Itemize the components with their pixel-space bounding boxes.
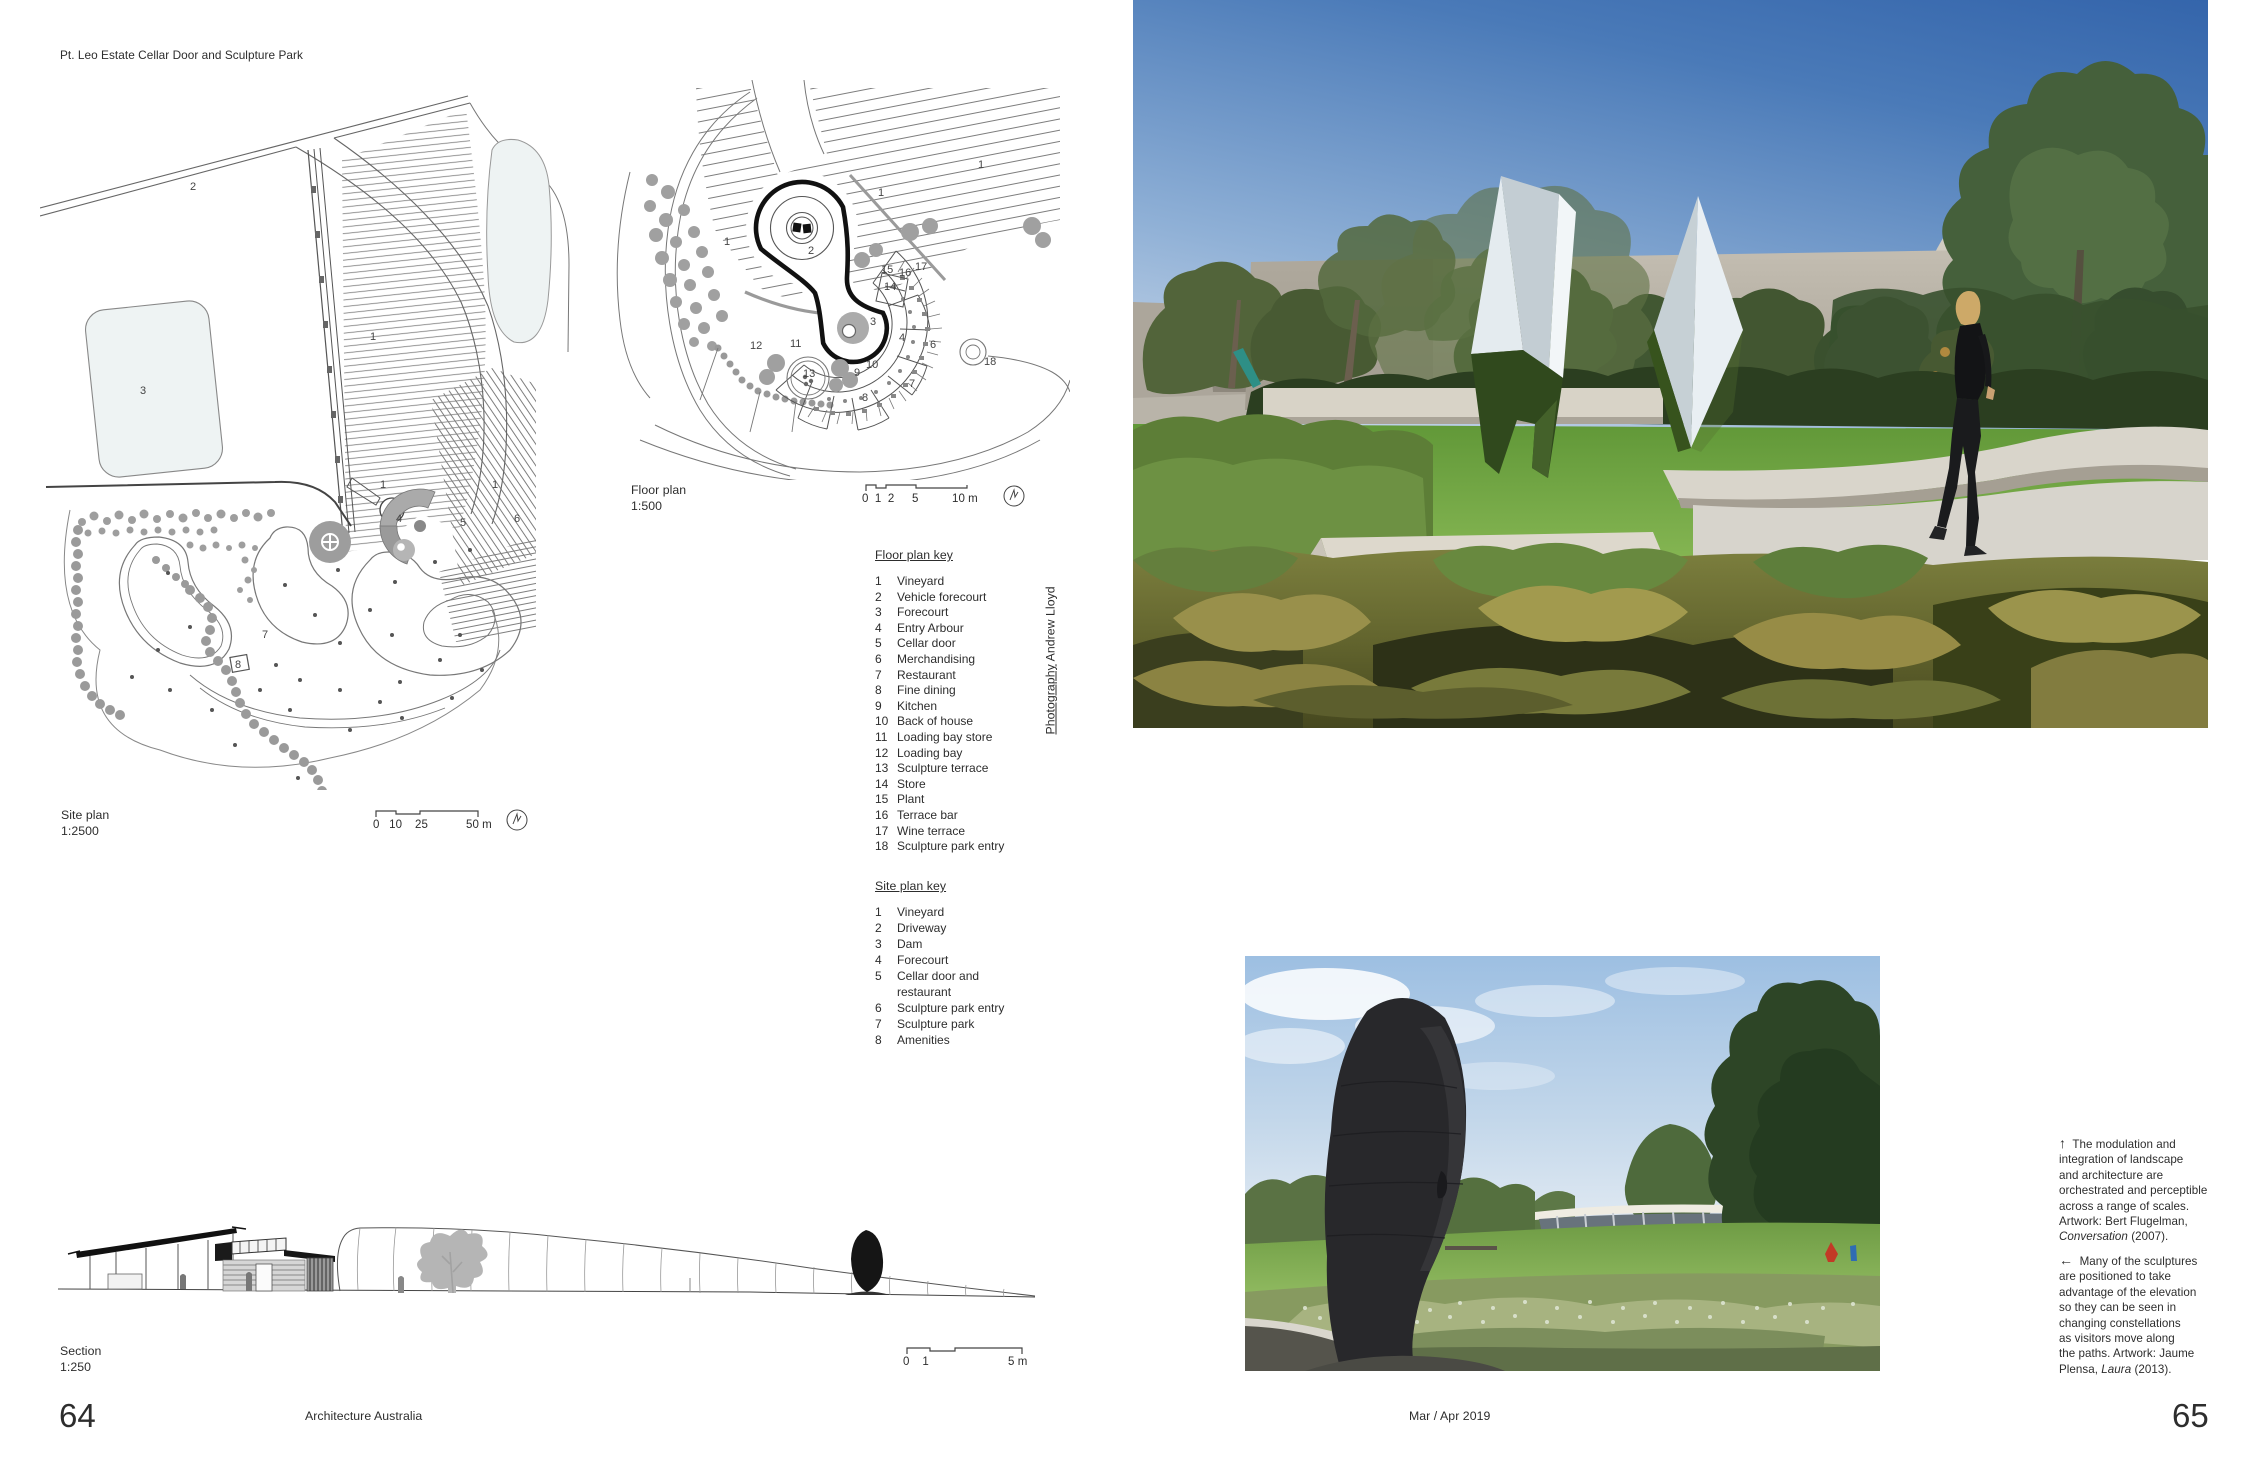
svg-text:9: 9 <box>854 367 860 379</box>
svg-text:6: 6 <box>514 513 520 525</box>
svg-text:12: 12 <box>750 340 762 352</box>
svg-text:7: 7 <box>262 629 268 641</box>
svg-text:2: 2 <box>808 245 814 257</box>
svg-text:3: 3 <box>140 385 146 397</box>
svg-text:1: 1 <box>878 187 884 199</box>
svg-text:18: 18 <box>984 356 996 368</box>
svg-text:13: 13 <box>803 368 815 380</box>
svg-text:7: 7 <box>909 378 915 390</box>
svg-text:1: 1 <box>724 236 730 248</box>
svg-text:15: 15 <box>881 264 893 276</box>
svg-text:4: 4 <box>899 332 905 344</box>
svg-text:6: 6 <box>930 339 936 351</box>
svg-text:3: 3 <box>870 316 876 328</box>
svg-text:14: 14 <box>884 281 896 293</box>
svg-text:10: 10 <box>866 359 878 371</box>
svg-text:17: 17 <box>915 261 927 273</box>
svg-text:1: 1 <box>978 159 984 171</box>
svg-text:2: 2 <box>190 181 196 193</box>
svg-text:4: 4 <box>396 513 402 525</box>
svg-text:1: 1 <box>380 479 386 491</box>
svg-text:1: 1 <box>370 331 376 343</box>
svg-text:8: 8 <box>235 659 241 671</box>
svg-text:8: 8 <box>862 392 868 404</box>
svg-text:1: 1 <box>492 479 498 491</box>
svg-text:11: 11 <box>790 338 801 350</box>
svg-text:16: 16 <box>899 267 911 279</box>
svg-text:5: 5 <box>460 517 466 529</box>
